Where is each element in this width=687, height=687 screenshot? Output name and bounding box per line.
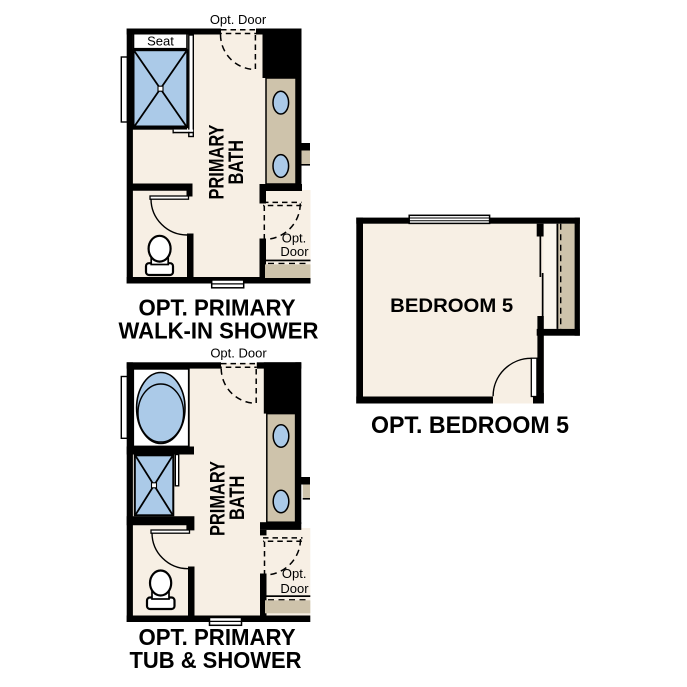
svg-text:TUB & SHOWER: TUB & SHOWER [130, 647, 302, 673]
svg-text:BATH: BATH [224, 140, 248, 185]
svg-text:Door: Door [280, 581, 309, 596]
svg-text:Seat: Seat [147, 34, 174, 49]
svg-text:Opt. Door: Opt. Door [210, 346, 267, 361]
svg-text:WALK-IN SHOWER: WALK-IN SHOWER [119, 318, 319, 344]
svg-text:Opt. Door: Opt. Door [210, 12, 267, 27]
svg-text:BATH: BATH [225, 476, 249, 521]
svg-text:Door: Door [280, 244, 309, 259]
svg-text:OPT. BEDROOM 5: OPT. BEDROOM 5 [371, 412, 569, 439]
svg-text:BEDROOM 5: BEDROOM 5 [390, 295, 513, 317]
svg-text:Opt.: Opt. [282, 566, 307, 581]
